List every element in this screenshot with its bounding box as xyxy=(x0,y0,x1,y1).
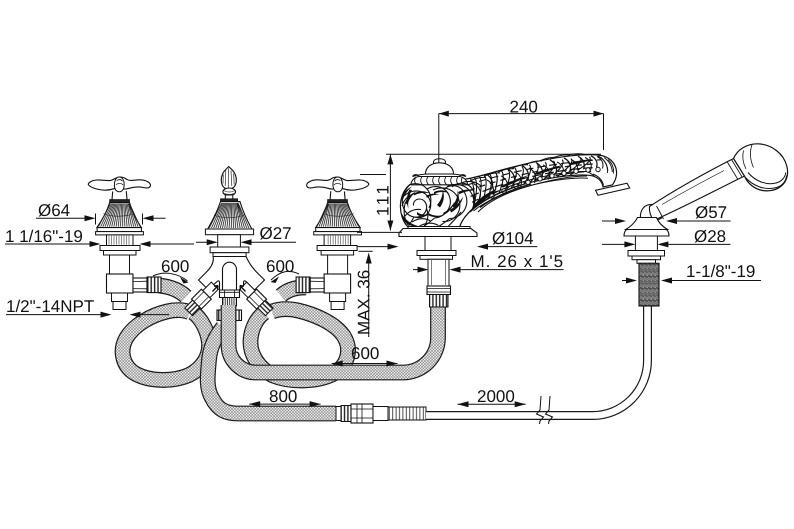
svg-text:1 1/16"-19: 1 1/16"-19 xyxy=(5,227,83,246)
svg-text:1-1/8"-19: 1-1/8"-19 xyxy=(686,262,755,281)
svg-text:240: 240 xyxy=(510,98,538,117)
svg-text:Ø104: Ø104 xyxy=(492,229,534,248)
svg-text:MAX. 36: MAX. 36 xyxy=(355,270,374,335)
svg-text:1/2"-14NPT: 1/2"-14NPT xyxy=(6,297,94,316)
svg-text:Ø57: Ø57 xyxy=(695,203,727,222)
svg-text:Ø64: Ø64 xyxy=(38,201,70,220)
svg-text:2000: 2000 xyxy=(477,387,515,406)
svg-text:600: 600 xyxy=(161,257,189,276)
svg-text:M. 26 x 1'5: M. 26 x 1'5 xyxy=(471,252,565,271)
svg-text:111: 111 xyxy=(374,183,393,216)
svg-text:600: 600 xyxy=(266,257,294,276)
svg-text:800: 800 xyxy=(269,387,297,406)
svg-text:Ø27: Ø27 xyxy=(260,224,292,243)
svg-text:600: 600 xyxy=(351,344,379,363)
svg-text:Ø28: Ø28 xyxy=(694,227,726,246)
